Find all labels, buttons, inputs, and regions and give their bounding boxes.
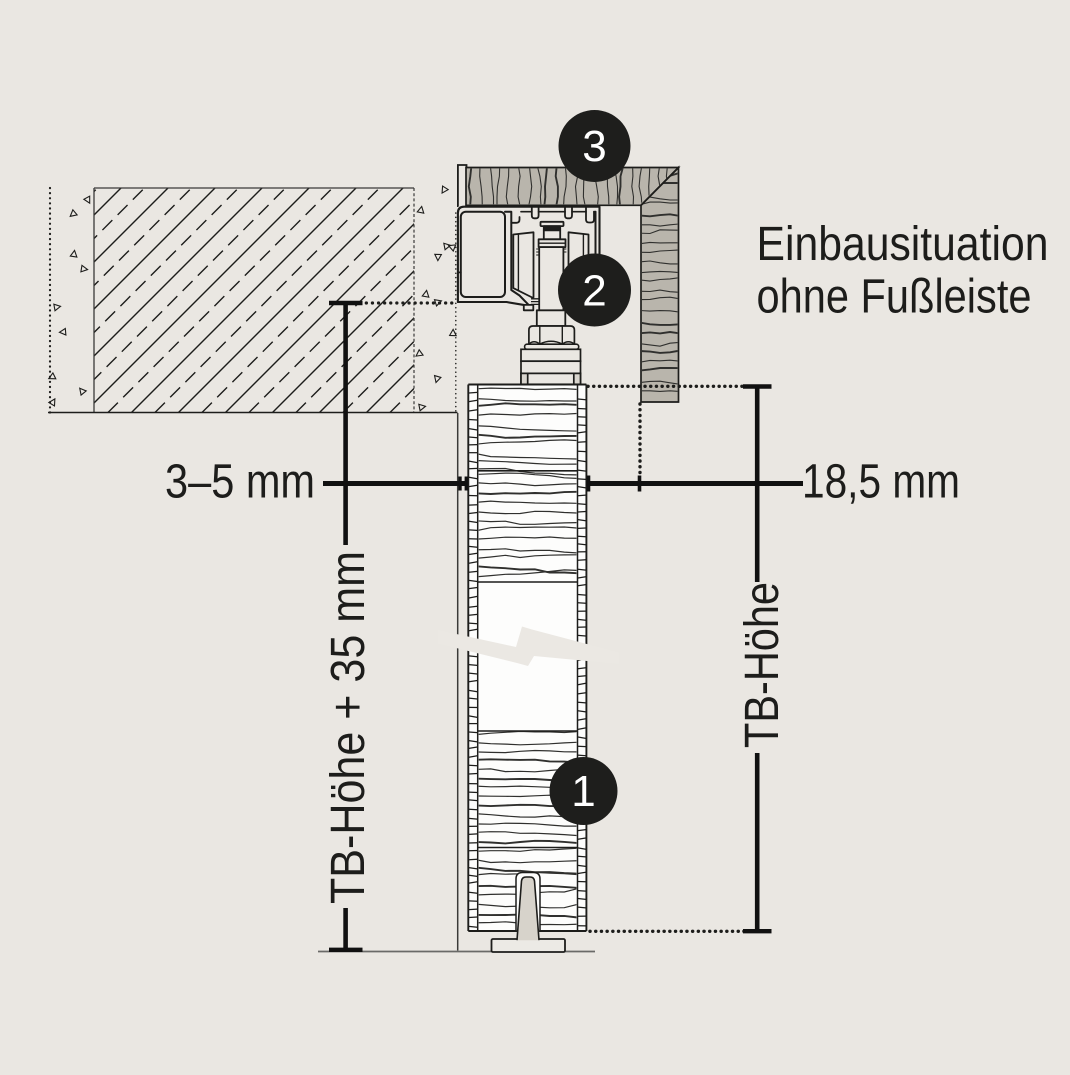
svg-text:TB-Höhe + 35 mm: TB-Höhe + 35 mm (322, 551, 375, 904)
svg-text:3: 3 (582, 122, 606, 171)
svg-text:ohne Fußleiste: ohne Fußleiste (757, 271, 1032, 324)
svg-text:Einbausituation: Einbausituation (757, 218, 1049, 271)
svg-text:18,5 mm: 18,5 mm (802, 456, 960, 509)
svg-text:TB-Höhe: TB-Höhe (736, 582, 789, 748)
svg-text:3–5 mm: 3–5 mm (165, 456, 315, 509)
svg-text:1: 1 (571, 767, 595, 816)
svg-text:2: 2 (582, 267, 606, 316)
